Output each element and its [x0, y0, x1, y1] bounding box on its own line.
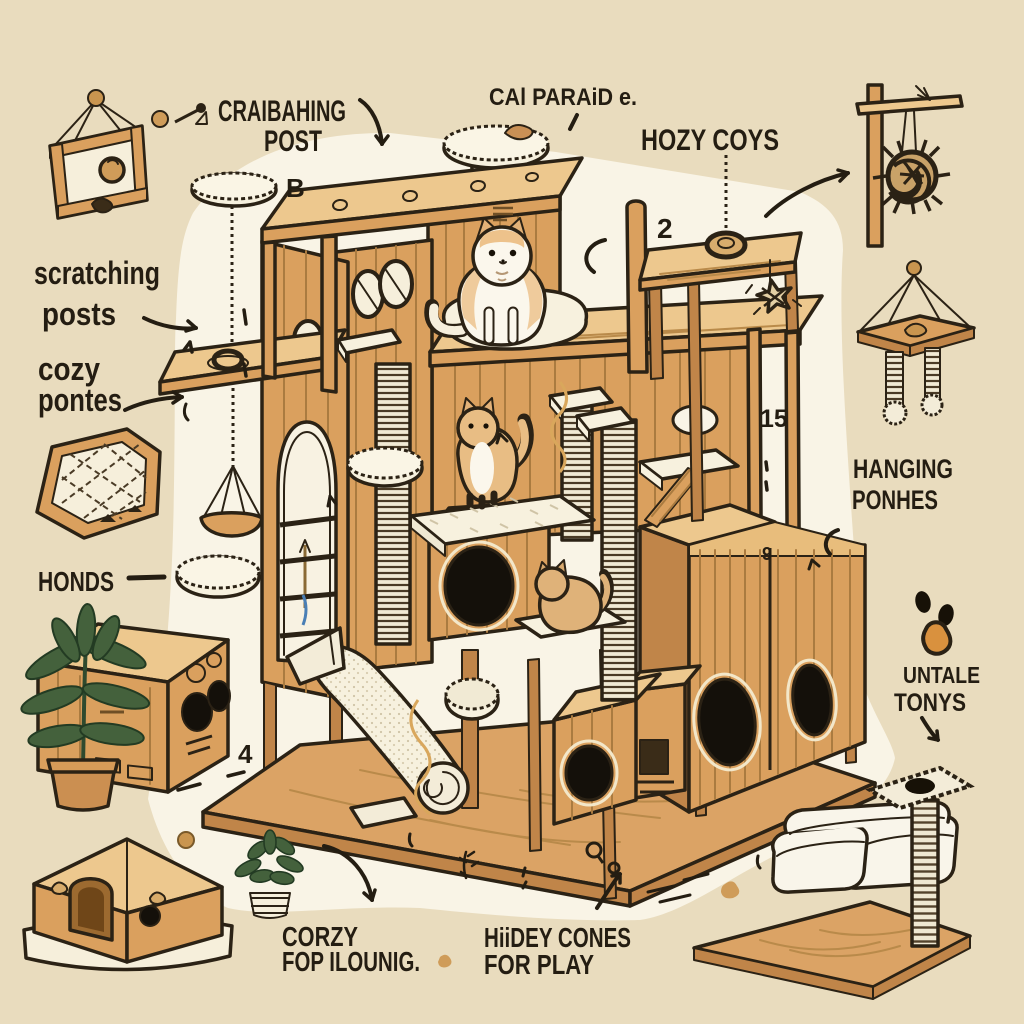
svg-text:PONHES: PONHES [852, 485, 938, 515]
svg-text:scratching: scratching [34, 255, 160, 291]
svg-text:FOP ILOUNIG.: FOP ILOUNIG. [282, 946, 420, 977]
svg-text:2: 2 [657, 213, 673, 244]
svg-text:CAl PARAiD e.: CAl PARAiD e. [489, 84, 637, 111]
svg-text:HANGING: HANGING [853, 454, 953, 484]
svg-text:CRAIBAHING: CRAIBAHING [218, 95, 346, 128]
svg-text:HONDS: HONDS [38, 566, 114, 597]
svg-text:POST: POST [264, 125, 322, 158]
svg-text:UNTALE: UNTALE [903, 662, 980, 688]
svg-text:B: B [286, 173, 305, 203]
svg-text:9: 9 [762, 544, 772, 564]
svg-text:FOR PLAY: FOR PLAY [484, 949, 594, 980]
svg-text:posts: posts [42, 296, 116, 332]
svg-text:15: 15 [760, 405, 788, 433]
svg-text:pontes: pontes [38, 382, 122, 418]
svg-text:4: 4 [238, 739, 253, 769]
svg-text:HOZY COYS: HOZY COYS [641, 124, 779, 157]
svg-text:TONYS: TONYS [894, 689, 966, 717]
